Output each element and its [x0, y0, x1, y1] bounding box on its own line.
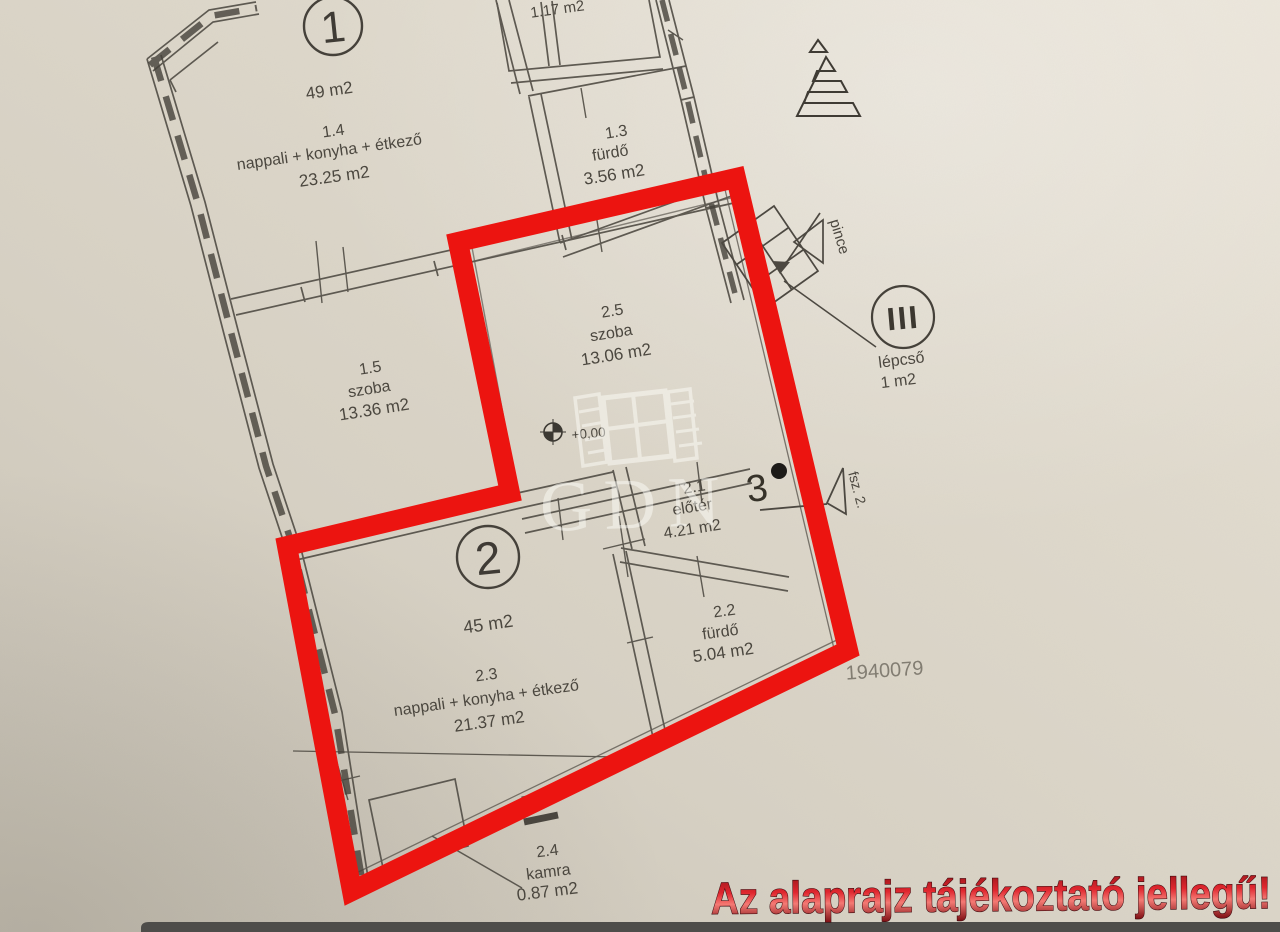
floorplan-svg: III 1.17 m2 1.3 fürdő 3.56 m2 49 m2 1.4 …: [0, 0, 1280, 932]
watermark-text: GDN: [539, 460, 734, 547]
room-25-number: 2.5: [600, 301, 625, 321]
stairwell-symbol: III: [885, 299, 921, 338]
room-24-number: 2.4: [535, 842, 559, 862]
room-13-number: 1.3: [604, 122, 629, 142]
warning-text: Az alaprajz tájékoztató jellegű!: [711, 867, 1272, 924]
room-14-number: 1.4: [321, 122, 345, 142]
floorplan-photo: III 1.17 m2 1.3 fürdő 3.56 m2 49 m2 1.4 …: [0, 0, 1280, 932]
room-22-number: 2.2: [712, 602, 736, 622]
unit-2-badge-number: 2: [473, 531, 504, 585]
unit-1-badge-number: 1: [318, 2, 347, 53]
room-15-number: 1.5: [358, 358, 383, 378]
level-dot: [771, 463, 787, 479]
room-23-number: 2.3: [474, 666, 498, 686]
